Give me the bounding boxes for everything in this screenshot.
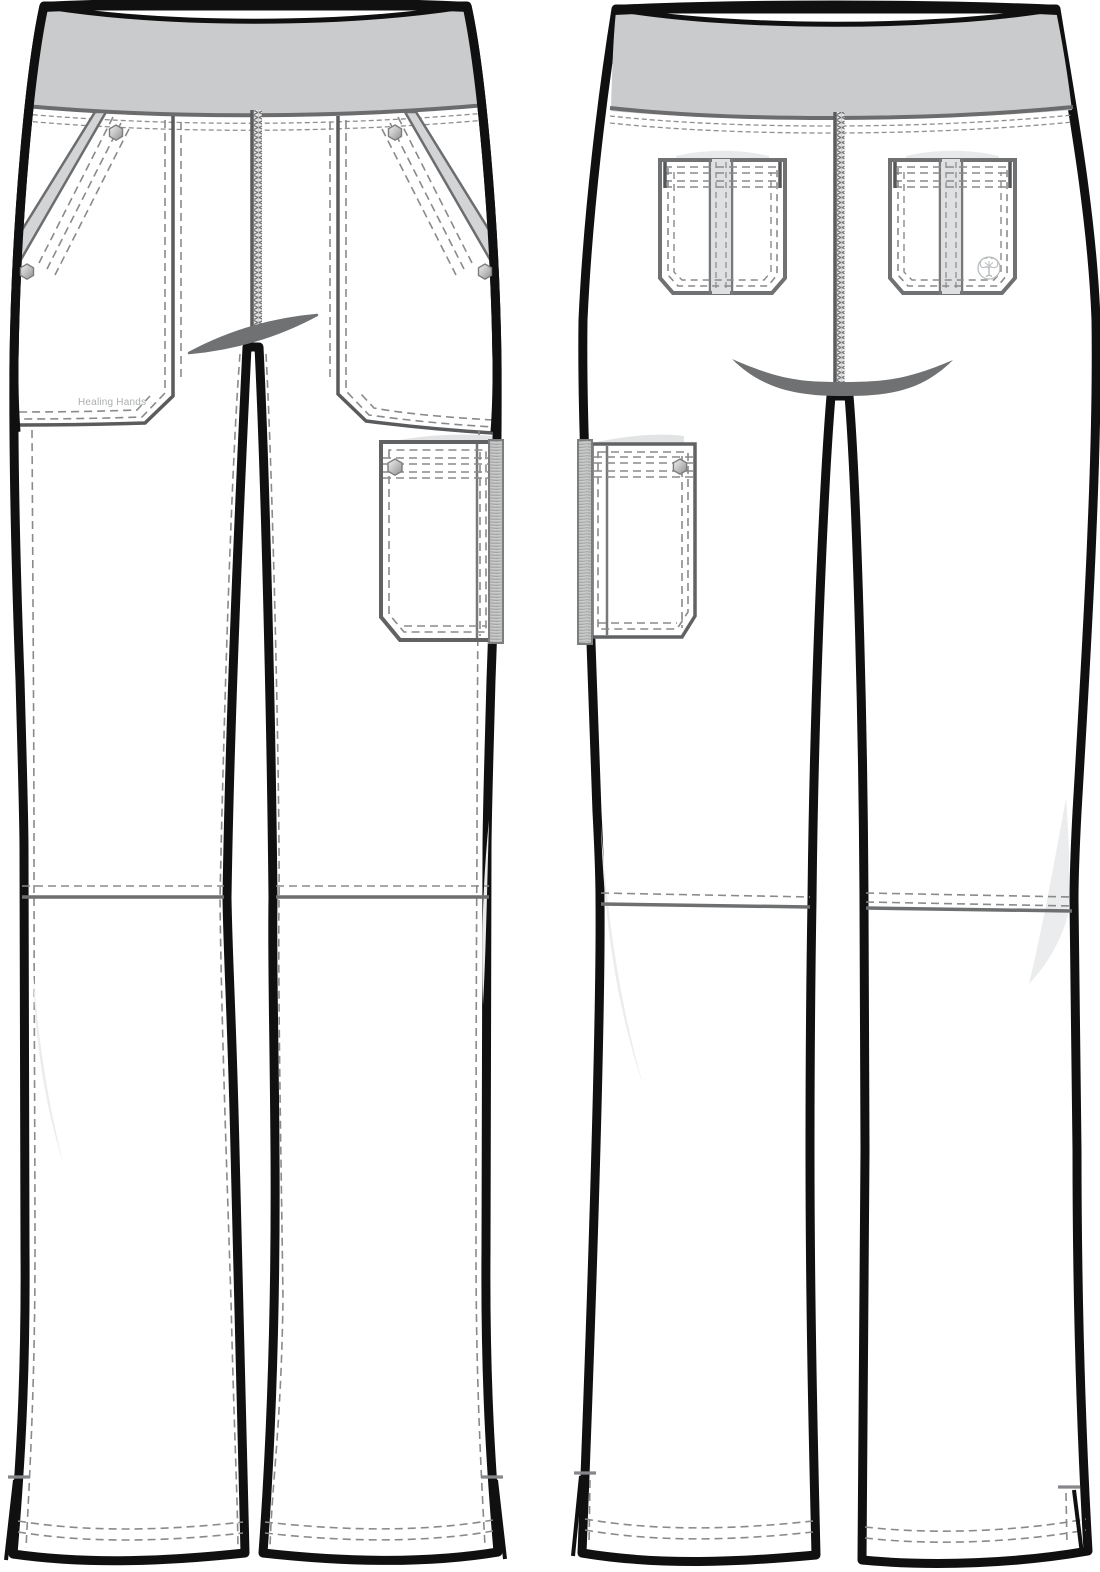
svg-text:Healing Hands: Healing Hands (78, 397, 146, 408)
